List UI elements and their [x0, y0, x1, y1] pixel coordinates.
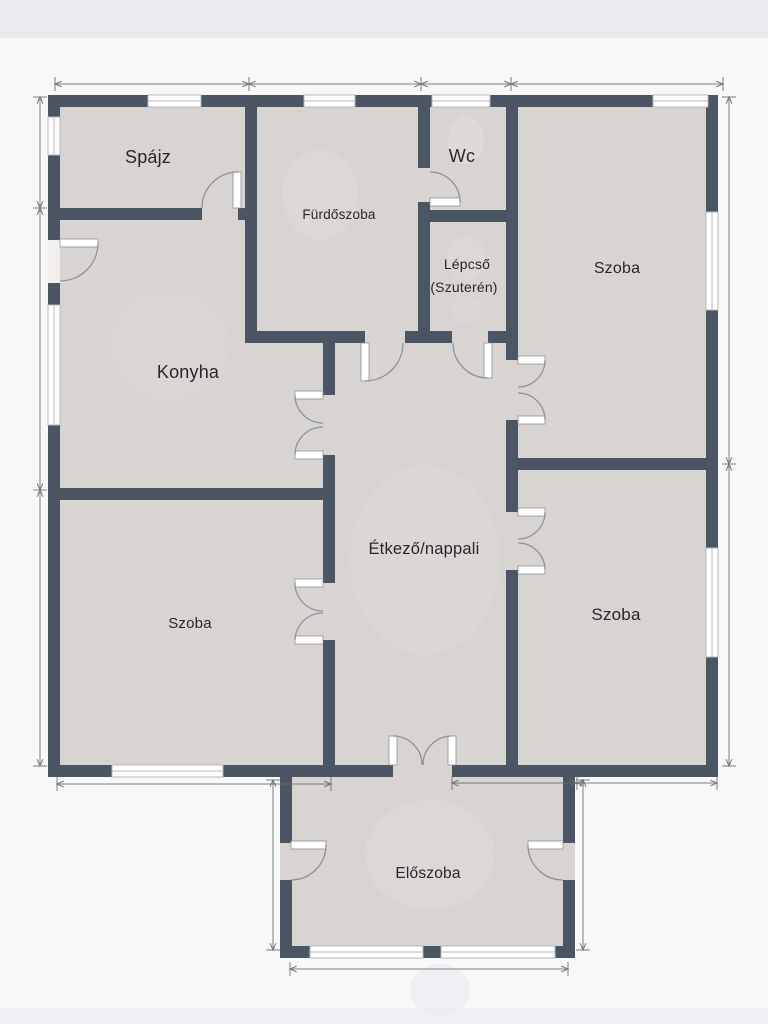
door-opening-wc	[418, 168, 430, 202]
shading-eloszoba	[365, 800, 495, 910]
room-label-spajz: Spájz	[125, 147, 171, 167]
room-label-etkezo-nappali: Étkező/nappali	[368, 539, 479, 558]
room-label-konyha: Konyha	[157, 362, 220, 382]
shading-furdoszoba	[282, 150, 358, 240]
room-label-wc: Wc	[449, 146, 475, 166]
shading-etkezo	[350, 465, 500, 655]
wall-outer-left	[48, 95, 60, 777]
room-label-szoba-also-jobb: Szoba	[591, 605, 641, 624]
door-leaf	[484, 343, 492, 378]
door-leaf	[448, 736, 456, 765]
door-opening-spajz	[202, 208, 238, 220]
door-leaf	[518, 416, 545, 424]
room-label-szoba-felso-jobb: Szoba	[594, 260, 640, 277]
door-leaf	[361, 343, 369, 381]
door-opening-konyha-etkezo	[323, 395, 335, 455]
door-leaf	[295, 391, 323, 399]
door-leaf	[295, 579, 323, 587]
wall-center-right	[506, 95, 518, 777]
bottom-band	[0, 1008, 768, 1024]
door-leaf	[518, 356, 545, 364]
room-label-lepcso: Lépcső	[444, 256, 490, 272]
door-leaf	[60, 239, 98, 247]
shading-konyha	[110, 290, 230, 400]
door-opening-konyha-exterior	[48, 240, 60, 283]
door-leaf	[295, 636, 323, 644]
door-opening-szoba-bal	[323, 583, 335, 640]
main-floor	[54, 101, 712, 771]
door-leaf	[295, 451, 323, 459]
door-leaf	[518, 566, 545, 574]
shading-below-plan	[410, 964, 470, 1016]
door-opening-eloszoba-right	[563, 843, 575, 880]
wall-konyha-szoba-divider	[48, 488, 335, 500]
room-label-lepcso-2: (Szuterén)	[430, 279, 497, 295]
door-leaf	[389, 736, 397, 765]
door-leaf	[291, 841, 326, 849]
room-label-eloszoba: Előszoba	[395, 865, 461, 882]
floorplan-drawing: Spájz Fürdőszoba Wc Lépcső (Szuterén) Sz…	[0, 0, 768, 1024]
shading-lepcso-2	[450, 296, 482, 324]
door-leaf	[233, 172, 241, 208]
wall-wc-lepcso-divider	[418, 210, 518, 222]
door-opening-eloszoba-left	[280, 843, 292, 880]
door-opening-szoba-jobb-felso	[506, 360, 518, 420]
door-opening-eloszoba-etkezo	[393, 765, 452, 777]
room-label-szoba-also-bal: Szoba	[168, 615, 212, 632]
door-leaf	[430, 198, 460, 206]
door-leaf	[528, 841, 563, 849]
wall-szoba-szoba-divider	[506, 458, 718, 470]
wall-spajz-furdoszoba	[245, 95, 257, 343]
floorplan-page: Spájz Fürdőszoba Wc Lépcső (Szuterén) Sz…	[0, 0, 768, 1024]
wall-outer-right	[706, 95, 718, 777]
room-label-furdoszoba: Fürdőszoba	[302, 207, 376, 222]
door-opening-lepcso	[452, 331, 488, 343]
top-band	[0, 0, 768, 38]
door-leaf	[518, 508, 545, 516]
door-opening-furdoszoba	[365, 331, 405, 343]
door-opening-szoba-jobb-also	[506, 512, 518, 570]
